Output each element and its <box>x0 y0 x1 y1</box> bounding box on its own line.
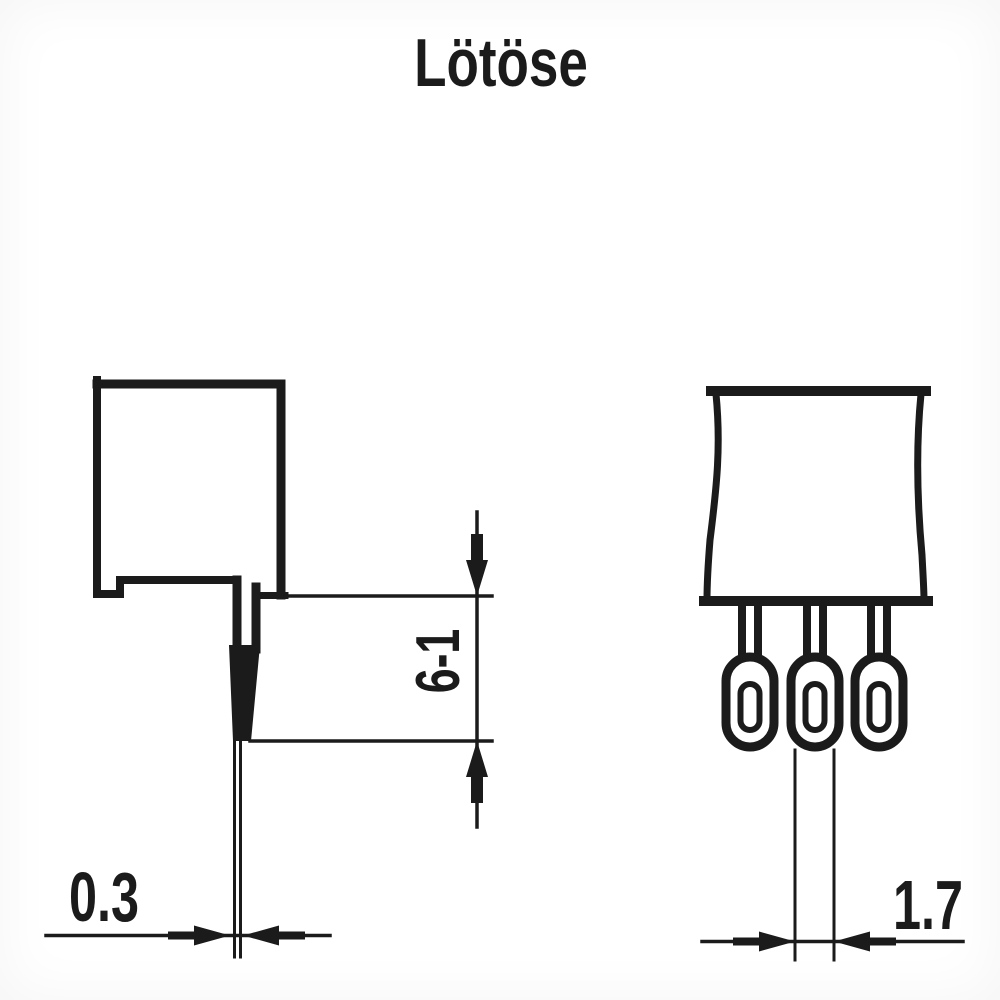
dim-arrow-right-icon <box>733 932 795 952</box>
dim-arrow-up-icon <box>466 741 488 803</box>
solder-lug-2 <box>791 606 839 747</box>
eyelet-hole <box>806 684 825 730</box>
eyelet-width-label: 1.7 <box>893 866 963 944</box>
lug-length-label: 6-1 <box>404 629 473 694</box>
side-view: 0.3 6-1 <box>46 380 492 957</box>
body-right-side <box>918 394 924 600</box>
lug-length-dimension: 6-1 <box>250 512 492 827</box>
dim-arrow-right-icon <box>168 926 230 946</box>
eyelet-width-dimension: 1.7 <box>702 750 963 960</box>
drawing-title: Lötöse <box>414 25 588 101</box>
body-left-side <box>707 394 718 600</box>
dim-arrow-left-icon <box>834 932 896 952</box>
pin-thickness-dimension: 0.3 <box>46 858 330 946</box>
dim-arrow-down-icon <box>466 534 488 596</box>
front-view: 1.7 <box>702 391 963 960</box>
eyelet-hole <box>870 684 889 730</box>
solder-lug-1 <box>726 606 774 747</box>
body-top-right-outline <box>97 384 281 595</box>
body-left-edge-and-foot <box>97 380 234 594</box>
drawing-canvas: Lötöse 0.3 6-1 <box>0 0 1000 1000</box>
technical-drawing: Lötöse 0.3 6-1 <box>0 0 1000 1000</box>
lug-solid-profile <box>229 645 260 741</box>
pin-thickness-label: 0.3 <box>69 858 139 936</box>
eyelet-hole <box>741 684 760 730</box>
dim-arrow-left-icon <box>243 926 305 946</box>
solder-lug-3 <box>855 606 903 747</box>
